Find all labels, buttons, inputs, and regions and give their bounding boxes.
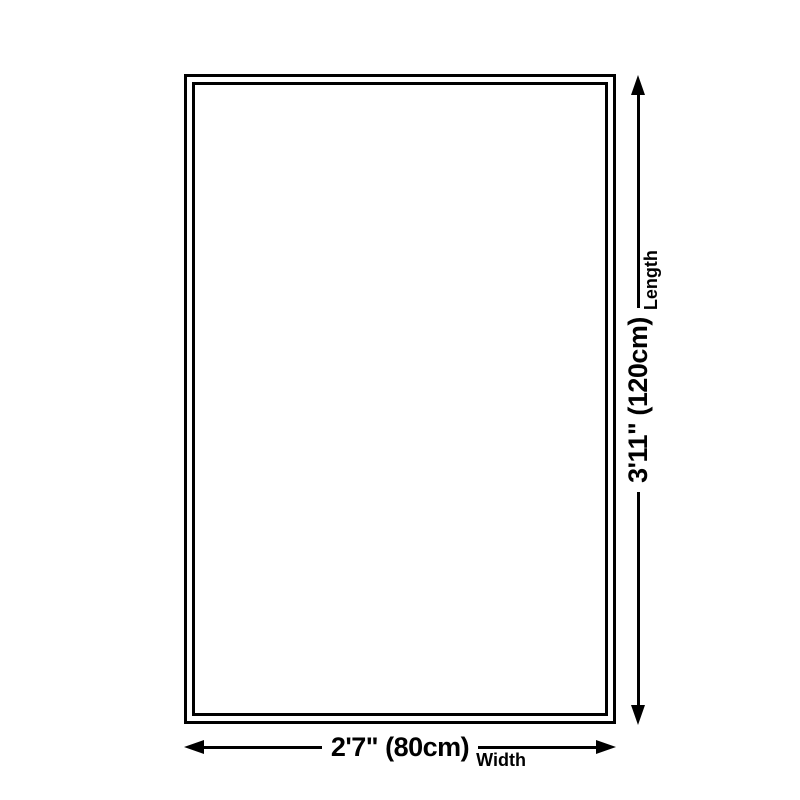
- length-dimension-line: [637, 95, 640, 308]
- length-dimension-line: [637, 492, 640, 705]
- width-value: 2'7" (80cm): [331, 731, 469, 763]
- length-dimension: 3'11" (120cm)Length: [616, 75, 660, 725]
- length-value: 3'11" (120cm): [622, 317, 654, 483]
- width-text-group: 2'7" (80cm)Width: [331, 731, 469, 763]
- arrow-right-icon: [596, 740, 616, 754]
- arrow-down-icon: [631, 705, 645, 725]
- arrow-up-icon: [631, 75, 645, 95]
- width-dimension-line: [204, 746, 322, 749]
- width-dimension: 2'7" (80cm)Width: [184, 725, 616, 769]
- length-text-group: 3'11" (120cm)Length: [622, 317, 654, 483]
- arrow-left-icon: [184, 740, 204, 754]
- rug-outline: [184, 74, 616, 724]
- size-diagram: 3'11" (120cm)Length 2'7" (80cm)Width: [0, 0, 800, 800]
- rug-inner-border: [192, 82, 608, 716]
- width-dimension-line: [478, 746, 596, 749]
